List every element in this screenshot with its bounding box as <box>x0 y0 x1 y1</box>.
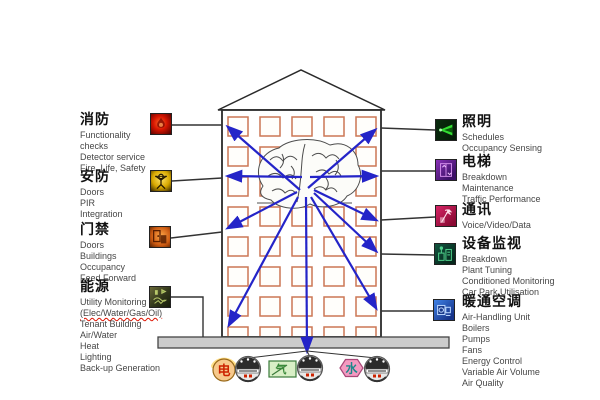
antenna-glyph <box>436 206 456 226</box>
panel-item: Back-up Generation <box>80 363 220 374</box>
window <box>356 207 376 226</box>
window <box>324 267 344 286</box>
hvac-icon <box>433 299 455 321</box>
building-roof <box>218 70 385 110</box>
panel-item: Buildings <box>80 251 220 262</box>
panel-equipment: 设备监视 Breakdown Plant Tuning Conditioned … <box>462 236 597 298</box>
energy-icon <box>149 286 171 308</box>
window <box>228 117 248 136</box>
arrow-left <box>228 176 302 177</box>
panel-item: Schedules <box>462 132 597 143</box>
panel-hvac: 暖通空调 Air-Handling Unit Boilers Pumps Fan… <box>462 294 597 389</box>
window <box>260 117 280 136</box>
lightbeam-glyph <box>436 120 456 140</box>
panel-item: Integration <box>80 209 220 220</box>
window <box>324 117 344 136</box>
security-icon <box>150 170 172 192</box>
elevator-glyph <box>436 160 456 180</box>
window <box>292 117 312 136</box>
panel-item: Air Quality <box>462 378 597 389</box>
window <box>228 267 248 286</box>
window <box>356 297 376 316</box>
window <box>228 147 248 166</box>
window <box>292 297 312 316</box>
equipment-icon <box>434 243 456 265</box>
panel-item: Breakdown <box>462 172 597 183</box>
panel-item: Plant Tuning <box>462 265 597 276</box>
water-symbol: 水 <box>340 360 363 377</box>
access-icon <box>149 226 171 248</box>
plant-glyph <box>435 244 455 264</box>
panel-item: Detector service <box>80 152 220 163</box>
panel-lighting: 照明 Schedules Occupancy Sensing <box>462 114 597 154</box>
panel-item: Lighting <box>80 352 220 363</box>
comms-icon <box>435 205 457 227</box>
airhandler-glyph <box>434 300 454 320</box>
panel-item: Voice/Video/Data <box>462 220 597 231</box>
panel-item: Occupancy Sensing <box>462 143 597 154</box>
panel-elevator: 电梯 Breakdown Maintenance Traffic Perform… <box>462 154 597 205</box>
connector-electric-meter <box>249 351 307 358</box>
lighting-icon <box>435 119 457 141</box>
panel-item: Air/Water <box>80 330 220 341</box>
panel-elevator-title: 电梯 <box>462 154 597 170</box>
panel-equipment-title: 设备监视 <box>462 236 597 252</box>
panel-item: PIR <box>80 198 220 209</box>
panel-item: Air-Handling Unit <box>462 312 597 323</box>
window <box>228 237 248 256</box>
panel-item: Pumps <box>462 334 597 345</box>
window <box>260 297 280 316</box>
water-label: 水 <box>345 361 358 376</box>
fire-glyph <box>151 114 171 134</box>
window <box>356 267 376 286</box>
panel-hvac-title: 暖通空调 <box>462 294 597 310</box>
panel-item: Maintenance <box>462 183 597 194</box>
window <box>356 147 376 166</box>
window <box>260 267 280 286</box>
window <box>292 267 312 286</box>
arrow-right <box>310 176 376 177</box>
panel-item: Breakdown <box>462 254 597 265</box>
gas-label: 气 <box>275 362 287 376</box>
electric-gauge-icon <box>236 357 261 382</box>
window <box>324 297 344 316</box>
panel-lighting-title: 照明 <box>462 114 597 130</box>
energy-glyph <box>150 287 170 307</box>
panel-item: Fans <box>462 345 597 356</box>
window <box>356 237 376 256</box>
fire-icon <box>150 113 172 135</box>
water-gauge-icon <box>365 357 390 382</box>
panel-item: Boilers <box>462 323 597 334</box>
connector-comms <box>381 217 435 220</box>
window <box>228 177 248 196</box>
window <box>292 237 312 256</box>
person-glyph <box>151 171 171 191</box>
brain-icon <box>258 140 360 209</box>
connector-water-meter <box>307 351 376 358</box>
smart-building-diagram: 电 气 水 消防 Functionality checks Detector s… <box>0 0 600 400</box>
panel-item: (Elec/Water/Gas/Oil) <box>80 308 220 319</box>
connector-equipment <box>381 254 434 255</box>
window <box>292 207 312 226</box>
panel-item: Energy Control <box>462 356 597 367</box>
panel-item: Conditioned Monitoring <box>462 276 597 287</box>
gas-gauge-icon <box>298 356 323 381</box>
window <box>260 237 280 256</box>
panel-item: Tenant Building <box>80 319 220 330</box>
panel-comms-title: 通讯 <box>462 202 597 218</box>
connector-lighting <box>381 128 435 130</box>
panel-item: Heat <box>80 341 220 352</box>
panel-comms: 通讯 Voice/Video/Data <box>462 202 597 231</box>
panel-item: Occupancy <box>80 262 220 273</box>
panel-item: Variable Air Volume <box>462 367 597 378</box>
elevator-icon <box>435 159 457 181</box>
door-glyph <box>150 227 170 247</box>
panel-item: checks <box>80 141 220 152</box>
gas-symbol: 气 <box>269 361 296 377</box>
arrow-down <box>306 197 307 351</box>
